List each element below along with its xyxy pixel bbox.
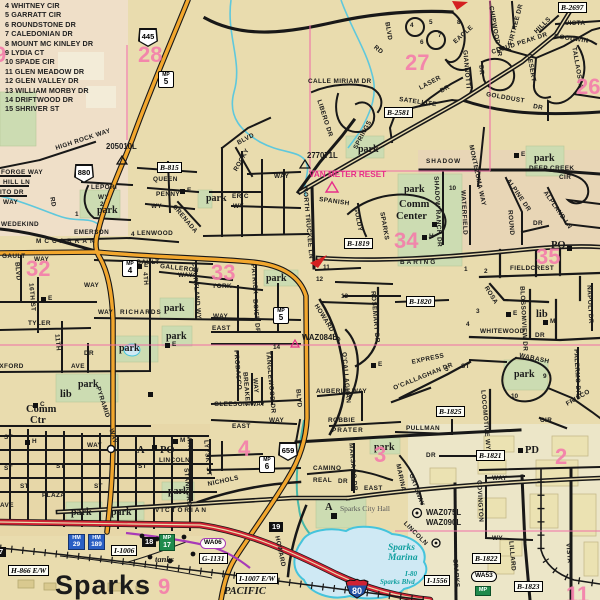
interstate-shield: 80 bbox=[345, 578, 369, 599]
nevada-route-shield: 445 bbox=[138, 28, 158, 47]
marina-label-2: Marina bbox=[388, 554, 418, 564]
hm-marker: HM29 bbox=[68, 534, 85, 550]
sparks-street-map: HIGH ROCK WAYFORGE WAYHILL LNITO DRWAYRD… bbox=[0, 0, 600, 600]
bridge-ref-box: B-1820 bbox=[406, 296, 435, 307]
bridge-ref-box: B-815 bbox=[157, 162, 182, 173]
bridge-ref-box: I-1556 bbox=[424, 575, 450, 586]
bridge-ref-box: G-1131 bbox=[199, 553, 228, 564]
bridge-ref-box: B-1823 bbox=[514, 581, 543, 592]
green-milepost-marker: MP bbox=[475, 586, 491, 596]
hm-marker: HM189 bbox=[88, 534, 105, 550]
i80-note-1: I-80 bbox=[405, 571, 417, 578]
route-black-box: 7 bbox=[0, 547, 6, 557]
bridge-ref-box: I-1006 bbox=[111, 545, 137, 556]
bridge-ref-box: B-1821 bbox=[476, 450, 505, 461]
route-black-box: 18 bbox=[142, 537, 156, 547]
bridge-ref-box: B-1819 bbox=[344, 238, 373, 249]
bridge-ref-box: B-2581 bbox=[384, 107, 413, 118]
bridge-ref-box: B-1822 bbox=[472, 553, 501, 564]
city-hall-label: Sparks City Hall bbox=[340, 505, 390, 513]
route-black-box: 19 bbox=[269, 522, 283, 532]
city-label: Sparks bbox=[55, 572, 151, 599]
markers-layer: B-815B-2581B-2697B-1819B-1820B-1825B-182… bbox=[0, 0, 600, 600]
city-hall-marker: A bbox=[325, 503, 333, 514]
route-oval-marker: WA06 bbox=[200, 538, 226, 549]
bridge-ref-box: B-2697 bbox=[558, 2, 587, 13]
i80-note-2: Sparks Blvd bbox=[380, 579, 415, 586]
milepost-marker: MP5 bbox=[158, 71, 174, 88]
nevada-route-shield: 880 bbox=[74, 164, 94, 183]
nevada-route-shield: 659 bbox=[278, 442, 298, 461]
milepost-marker: MP4 bbox=[122, 260, 138, 277]
bridge-ref-box: B-1825 bbox=[436, 406, 465, 417]
green-milepost-marker: MP17 bbox=[159, 534, 175, 551]
milepost-marker: MP5 bbox=[273, 307, 289, 324]
route-oval-marker: WA53 bbox=[471, 571, 497, 582]
bridge-ref-box: H-866 E/W bbox=[8, 565, 49, 576]
bridge-ref-box: I-1007 E/W bbox=[236, 573, 278, 584]
milepost-marker: MP6 bbox=[259, 456, 275, 473]
